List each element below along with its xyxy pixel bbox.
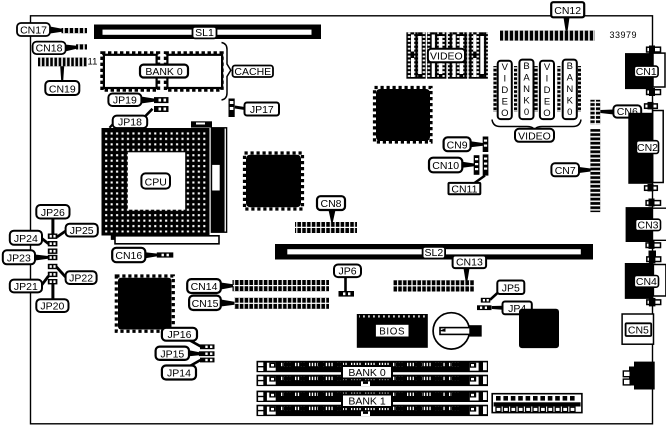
svg-text:JP26: JP26: [41, 207, 65, 219]
svg-text:JP6: JP6: [338, 266, 356, 278]
svg-text:11: 11: [88, 57, 98, 68]
svg-text:CN11: CN11: [451, 184, 477, 196]
svg-text:CN18: CN18: [36, 43, 63, 55]
svg-text:CN9: CN9: [447, 139, 468, 151]
svg-text:0: 0: [524, 107, 529, 118]
svg-text:VIDEO: VIDEO: [518, 130, 551, 142]
svg-text:JP24: JP24: [14, 233, 38, 245]
svg-text:JP23: JP23: [7, 253, 31, 265]
svg-text:B: B: [523, 61, 529, 72]
svg-text:BANK 0: BANK 0: [348, 367, 386, 379]
svg-text:BANK 0: BANK 0: [145, 66, 183, 78]
svg-text:N: N: [566, 84, 573, 95]
svg-text:CN14: CN14: [191, 281, 218, 293]
svg-text:CACHE: CACHE: [234, 66, 271, 78]
svg-text:CN13: CN13: [456, 257, 483, 269]
svg-text:JP16: JP16: [168, 329, 192, 341]
svg-text:BANK 1: BANK 1: [348, 396, 386, 408]
svg-text:V: V: [544, 62, 551, 73]
svg-text:CN16: CN16: [115, 250, 142, 262]
svg-text:CN4: CN4: [636, 276, 657, 288]
svg-text:A: A: [523, 72, 530, 83]
svg-text:JP18: JP18: [118, 117, 142, 129]
svg-text:O: O: [501, 108, 508, 119]
svg-text:AMP: AMP: [213, 133, 225, 158]
svg-text:0: 0: [567, 107, 572, 118]
svg-text:CN3: CN3: [637, 220, 658, 232]
svg-text:CN8: CN8: [320, 198, 341, 210]
svg-text:BIOS: BIOS: [379, 326, 405, 337]
svg-text:D: D: [501, 85, 508, 96]
svg-text:SL2: SL2: [425, 247, 444, 259]
svg-text:K: K: [523, 95, 530, 106]
svg-text:JP5: JP5: [502, 282, 520, 294]
svg-text:O: O: [543, 108, 550, 119]
svg-text:JP25: JP25: [70, 225, 94, 237]
svg-text:N: N: [523, 84, 530, 95]
svg-text:I: I: [503, 73, 506, 84]
svg-text:33979: 33979: [610, 30, 638, 40]
svg-text:CN12: CN12: [554, 5, 581, 17]
svg-text:JP20: JP20: [40, 301, 64, 313]
svg-text:JP22: JP22: [69, 273, 93, 285]
svg-text:CN2: CN2: [637, 142, 658, 154]
svg-text:CN17: CN17: [20, 24, 47, 36]
svg-text:CN10: CN10: [432, 160, 459, 172]
svg-text:VIDEO: VIDEO: [430, 51, 463, 63]
svg-text:CN19: CN19: [49, 83, 76, 95]
svg-text:CPU: CPU: [145, 176, 167, 188]
svg-text:E: E: [502, 96, 508, 107]
svg-text:JP15: JP15: [160, 348, 184, 360]
svg-text:B: B: [567, 61, 573, 72]
svg-text:K: K: [567, 95, 574, 106]
svg-text:I: I: [546, 73, 549, 84]
svg-text:CN1: CN1: [636, 66, 657, 78]
svg-text:V: V: [502, 62, 509, 73]
svg-text:JP19: JP19: [113, 95, 137, 107]
svg-text:D: D: [544, 85, 551, 96]
svg-text:JP17: JP17: [250, 104, 274, 116]
svg-text:JP21: JP21: [14, 281, 38, 293]
svg-text:CN15: CN15: [192, 298, 219, 310]
svg-text:E: E: [544, 96, 550, 107]
svg-text:A: A: [567, 72, 574, 83]
svg-text:CN5: CN5: [628, 325, 649, 337]
svg-text:SL1: SL1: [195, 27, 214, 39]
svg-text:CN7: CN7: [555, 165, 576, 177]
svg-text:JP14: JP14: [167, 368, 191, 380]
